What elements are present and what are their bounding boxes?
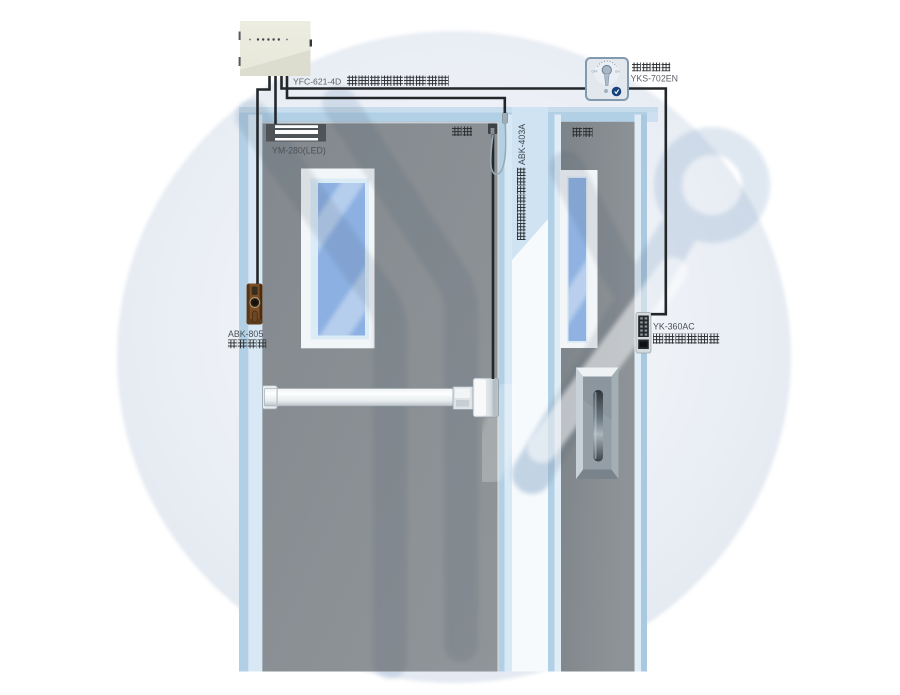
svg-text:YFC-621-4D: YFC-621-4D [293, 77, 341, 87]
svg-text:YK-360AC: YK-360AC [653, 322, 695, 332]
svg-text:ABK-805: ABK-805 [228, 329, 263, 339]
svg-text:OFF: OFF [592, 70, 598, 74]
svg-text:YM-280(LED): YM-280(LED) [272, 146, 326, 156]
svg-text:YKS-702EN: YKS-702EN [631, 74, 678, 84]
svg-text:ABK-403A: ABK-403A [517, 124, 527, 165]
svg-text:ON: ON [615, 70, 620, 74]
